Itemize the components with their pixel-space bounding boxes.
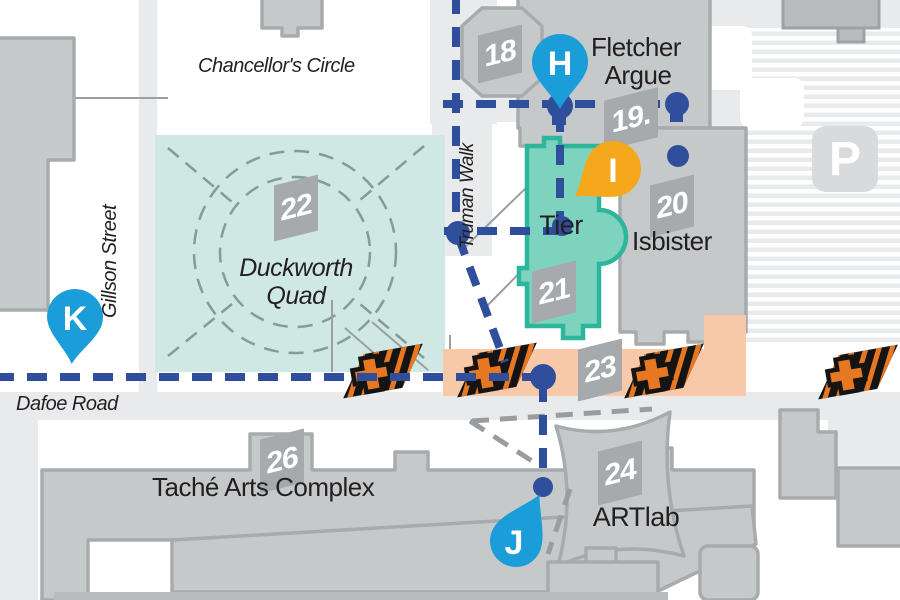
building-right-rect bbox=[838, 468, 900, 546]
tier-label: Tier bbox=[524, 212, 598, 240]
building-bottom-right-small bbox=[700, 546, 758, 600]
fletcher-argue-label-1: Fletcher bbox=[576, 34, 696, 61]
map-base-layer bbox=[0, 0, 900, 600]
badge-21[interactable]: 21 bbox=[532, 261, 576, 324]
badge-24[interactable]: 24 bbox=[598, 441, 642, 506]
campus-map: 18 19. 20 21 22 23 24 26 Chancellor's Ci… bbox=[0, 0, 900, 600]
parking-icon[interactable]: P bbox=[812, 126, 878, 192]
fletcher-argue-label-2: Argue bbox=[586, 62, 690, 89]
tache-arts-label: Taché Arts Complex bbox=[152, 474, 374, 501]
building-left-tower bbox=[0, 38, 74, 310]
duckworth-quad-label-2: Quad bbox=[246, 284, 346, 310]
duckworth-quad-label-1: Duckworth bbox=[228, 256, 364, 282]
isbister-label: Isbister bbox=[632, 228, 712, 255]
badge-22[interactable]: 22 bbox=[274, 175, 318, 242]
building-right-l bbox=[780, 410, 836, 498]
building-top-center bbox=[262, 0, 322, 36]
truman-walk-label: Truman Walk bbox=[458, 104, 477, 249]
gillson-street-label: Gillson Street bbox=[100, 168, 120, 318]
chancellors-circle-label: Chancellor's Circle bbox=[198, 56, 355, 76]
artlab-label: ARTlab bbox=[566, 504, 706, 532]
dafoe-road-label: Dafoe Road bbox=[16, 394, 118, 414]
badge-23[interactable]: 23 bbox=[578, 339, 622, 402]
